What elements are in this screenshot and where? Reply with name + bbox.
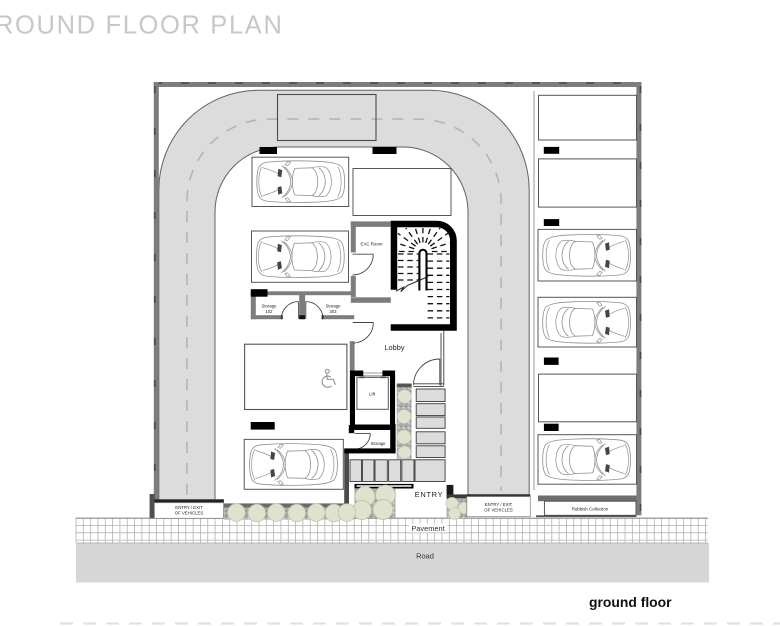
svg-text:303: 303 <box>329 309 337 314</box>
svg-text:GROUND FLOOR PLAN: GROUND FLOOR PLAN <box>0 12 284 40</box>
svg-text:ENTRY: ENTRY <box>415 490 443 499</box>
svg-text:ENTRY / EXIT: ENTRY / EXIT <box>175 505 203 510</box>
svg-text:ENTRY / EXIT: ENTRY / EXIT <box>485 502 513 507</box>
svg-text:Storage: Storage <box>261 304 277 309</box>
svg-text:OF VEHICLES: OF VEHICLES <box>484 508 513 513</box>
svg-text:Pavement: Pavement <box>411 524 444 533</box>
svg-text:Storage: Storage <box>370 441 386 446</box>
svg-text:Storage: Storage <box>325 304 341 309</box>
svg-text:Lift: Lift <box>369 392 376 397</box>
svg-text:102: 102 <box>265 309 273 314</box>
svg-text:Rubbish Collection: Rubbish Collection <box>572 507 609 512</box>
svg-text:Lobby: Lobby <box>384 343 404 352</box>
svg-text:Road: Road <box>416 552 434 561</box>
svg-text:ground floor: ground floor <box>589 594 672 610</box>
svg-text:EAC Room: EAC Room <box>361 242 383 247</box>
svg-text:OF VEHICLES: OF VEHICLES <box>175 510 204 515</box>
